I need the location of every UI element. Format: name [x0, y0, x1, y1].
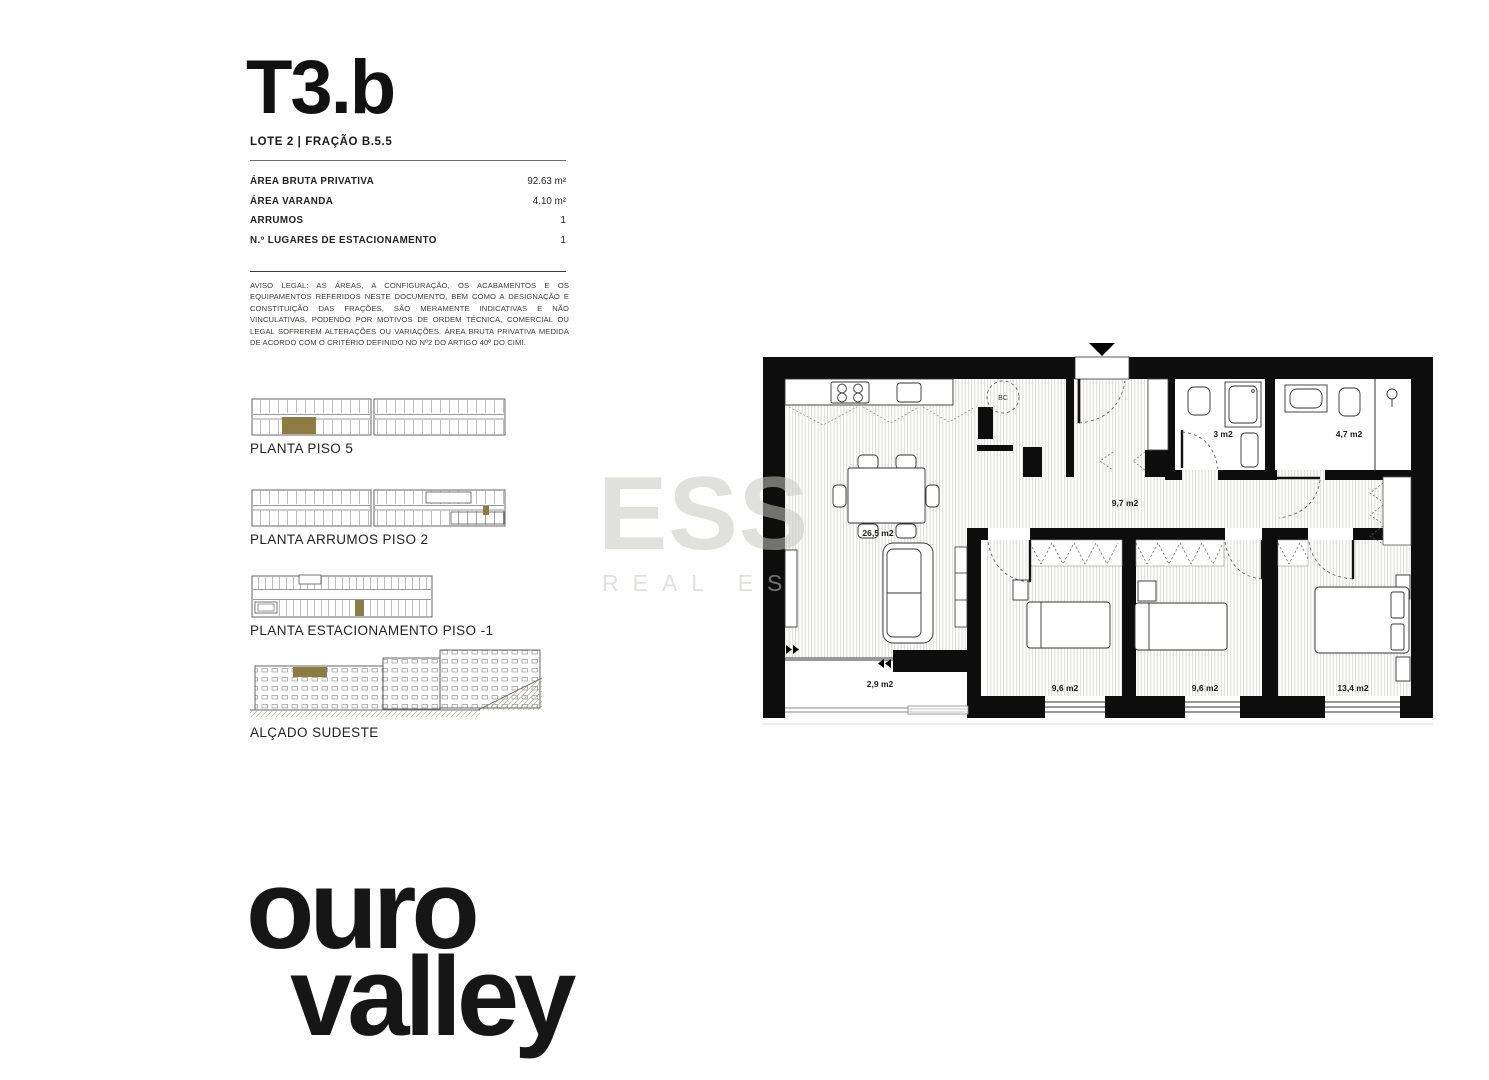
- window-bedroom2: [1185, 696, 1240, 718]
- bed-icon: [1027, 602, 1110, 648]
- toilet-icon: [1339, 388, 1360, 416]
- parking-highlight: [355, 600, 364, 616]
- toilet-icon: [1241, 433, 1258, 467]
- spec-row-arrumos: ARRUMOS 1: [250, 215, 566, 235]
- unit-highlight: [293, 667, 327, 677]
- room-label-kitchen-living: 26,5 m2: [862, 528, 893, 538]
- spec-value: 1: [561, 215, 566, 226]
- room-label-balcony: 2,9 m2: [867, 679, 894, 689]
- windows: [1045, 696, 1400, 718]
- thumbnail-caption-alcado: ALÇADO SUDESTE: [250, 725, 379, 740]
- table-divider: [250, 271, 566, 272]
- room-label-bathroom1: 3 m2: [1213, 429, 1233, 439]
- spec-row-estacionamento: N.º LUGARES DE ESTACIONAMENTO 1: [250, 235, 566, 255]
- thumbnail-alcado-sudeste: [250, 648, 542, 720]
- storage-highlight: [483, 506, 489, 515]
- entry-arrow-icon: [1089, 343, 1115, 356]
- room-label-hall: 9,7 m2: [1112, 498, 1139, 508]
- spec-value: 92.63 m²: [527, 176, 566, 187]
- thumbnail-caption-estacionamento: PLANTA ESTACIONAMENTO PISO -1: [250, 623, 493, 638]
- spec-value: 1: [561, 235, 566, 246]
- tv-unit: [785, 550, 797, 627]
- spec-row-varanda: ÁREA VARANDA 4.10 m²: [250, 196, 566, 216]
- building-strip-right: [374, 399, 505, 435]
- room-label-bedroom1: 9,6 m2: [1052, 683, 1079, 693]
- thumbnail-planta-arrumos: [251, 487, 507, 529]
- brochure-page: T3.b LOTE 2 | FRAÇÃO B.5.5 ÁREA BRUTA PR…: [0, 0, 1489, 1080]
- legal-disclaimer: AVISO LEGAL: AS ÁREAS, A CONFIGURAÇÃO, O…: [250, 280, 569, 348]
- unit-spec-table: ÁREA BRUTA PRIVATIVA 92.63 m² ÁREA VARAN…: [250, 176, 566, 254]
- garage-core: [299, 575, 321, 584]
- svg-text:BC: BC: [998, 395, 1008, 402]
- spec-label: ÁREA BRUTA PRIVATIVA: [250, 176, 374, 187]
- window-bedroom1: [1045, 696, 1105, 718]
- shower-head-icon: [1387, 389, 1397, 399]
- shelf-unit: [955, 547, 967, 627]
- sink-icon: [897, 383, 921, 402]
- spec-label: ÁREA VARANDA: [250, 196, 333, 207]
- thumbnail-planta-estacionamento: [251, 574, 437, 619]
- building-strip-left: [252, 490, 371, 526]
- ouro-valley-logo: ouro valley: [246, 866, 571, 1041]
- header-divider: [250, 160, 566, 161]
- window-bedroom3: [1325, 696, 1400, 718]
- page-title: T3.b: [246, 44, 394, 131]
- sofa: [883, 543, 933, 643]
- floorplan-drawing: BC: [763, 337, 1433, 739]
- entry-closet: [1148, 379, 1168, 450]
- thumbnail-planta-piso5: [251, 396, 507, 438]
- thumbnail-caption-arrumos: PLANTA ARRUMOS PISO 2: [250, 532, 428, 547]
- room-label-bathroom2: 4,7 m2: [1336, 429, 1363, 439]
- thumbnail-caption-piso5: PLANTA PISO 5: [250, 441, 353, 456]
- washbasin-icon: [1188, 387, 1210, 415]
- spec-label: ARRUMOS: [250, 215, 303, 226]
- spec-row-area-bruta: ÁREA BRUTA PRIVATIVA 92.63 m²: [250, 176, 566, 196]
- lot-fraction-subtitle: LOTE 2 | FRAÇÃO B.5.5: [250, 136, 392, 148]
- unit-highlight: [282, 417, 316, 434]
- spec-label: N.º LUGARES DE ESTACIONAMENTO: [250, 235, 437, 246]
- room-label-bedroom3: 13,4 m2: [1337, 683, 1368, 693]
- spec-value: 4.10 m²: [533, 196, 566, 207]
- sliding-door: [785, 657, 893, 661]
- room-label-bedroom2: 9,6 m2: [1192, 683, 1219, 693]
- logo-line2: valley: [290, 953, 571, 1040]
